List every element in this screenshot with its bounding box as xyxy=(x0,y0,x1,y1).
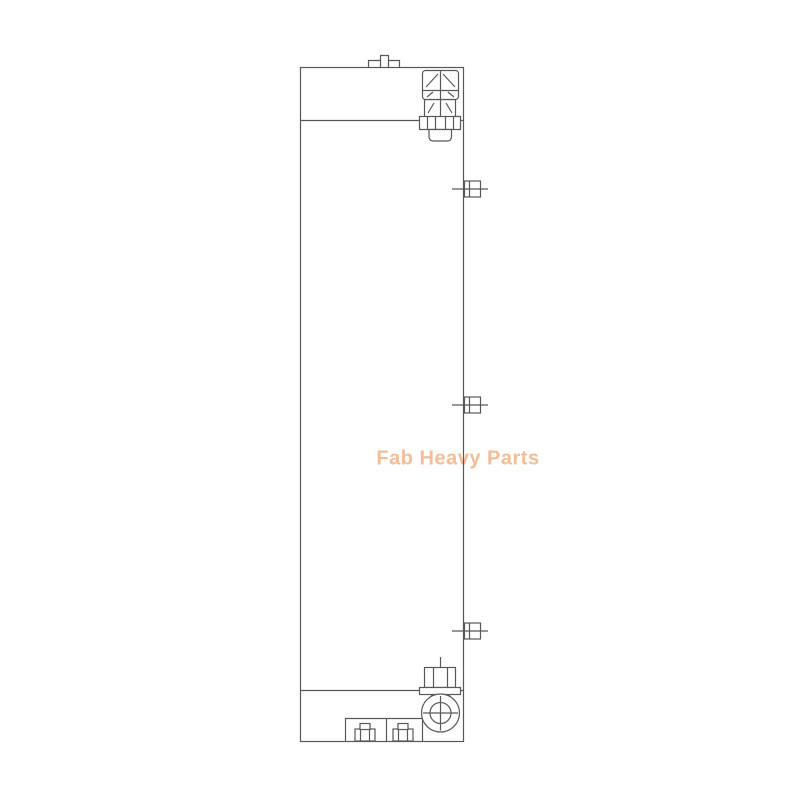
side-stud-upper xyxy=(452,181,488,197)
top-mounting-tab xyxy=(369,56,400,68)
part-technical-drawing xyxy=(0,0,800,800)
bottom-port-circle xyxy=(422,694,460,732)
side-stud-lower xyxy=(452,623,488,639)
side-stud-middle xyxy=(452,397,488,413)
bracket-bolt-right xyxy=(393,724,413,742)
product-image: Fab Heavy Parts xyxy=(0,0,800,800)
core-body-outline xyxy=(301,68,464,742)
bracket-bolt-left xyxy=(355,724,375,742)
top-filler-cap-fitting xyxy=(420,71,461,142)
